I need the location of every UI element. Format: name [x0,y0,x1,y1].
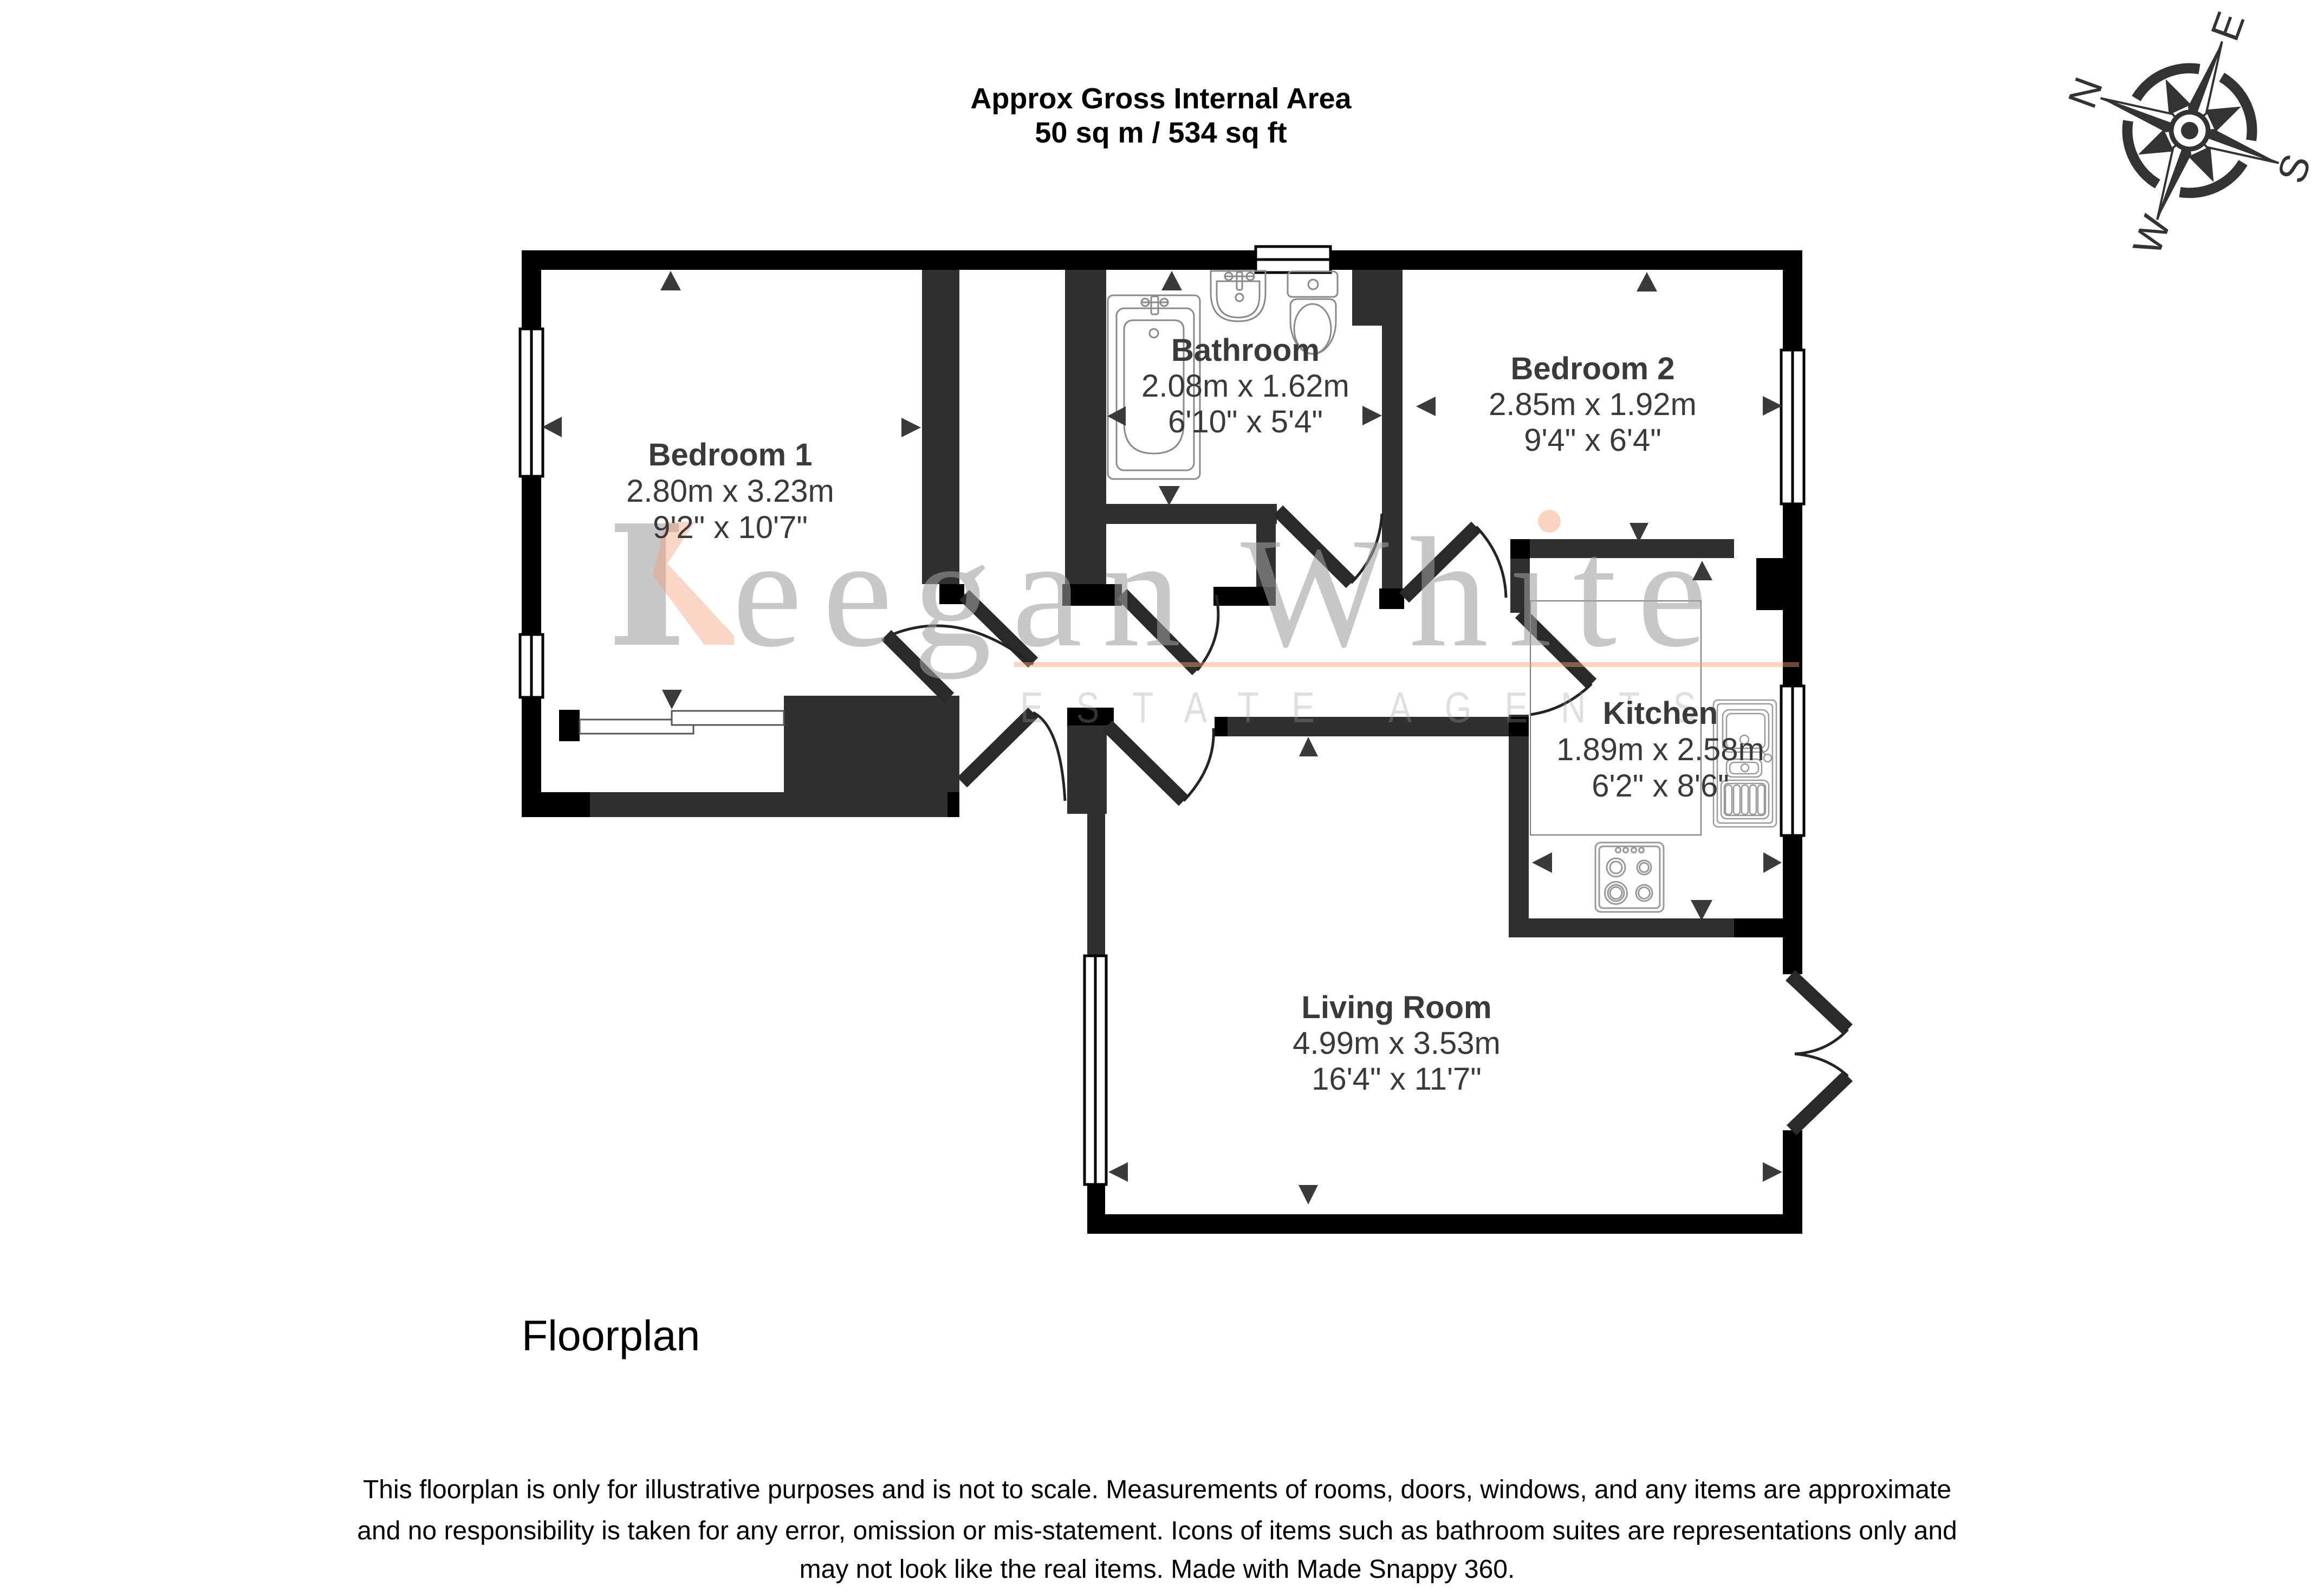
svg-text:Approx Gross Internal Area: Approx Gross Internal Area [970,82,1352,115]
svg-text:Floorplan: Floorplan [522,1311,700,1359]
svg-text:may not look like the real ite: may not look like the real items. Made w… [800,1555,1515,1584]
svg-text:and no responsibility is taken: and no responsibility is taken for any e… [357,1517,1957,1545]
svg-text:This floorplan is only for ill: This floorplan is only for illustrative … [363,1475,1951,1504]
svg-text:1.89m x 2.58m: 1.89m x 2.58m [1556,732,1764,767]
svg-text:Kitchen: Kitchen [1603,696,1718,731]
svg-text:Living Room: Living Room [1301,990,1491,1025]
svg-text:2.08m x 1.62m: 2.08m x 1.62m [1141,368,1349,404]
svg-text:Bedroom 1: Bedroom 1 [648,437,813,472]
svg-text:6'10" x 5'4": 6'10" x 5'4" [1168,404,1323,439]
svg-text:9'4" x 6'4": 9'4" x 6'4" [1524,423,1661,458]
svg-text:2.80m x 3.23m: 2.80m x 3.23m [626,474,834,509]
svg-text:4.99m x 3.53m: 4.99m x 3.53m [1293,1026,1501,1061]
svg-text:6'2" x 8'6": 6'2" x 8'6" [1592,768,1729,804]
svg-text:2.85m x 1.92m: 2.85m x 1.92m [1489,387,1697,422]
svg-text:Bathroom: Bathroom [1171,333,1320,368]
svg-text:Bedroom 2: Bedroom 2 [1511,351,1675,386]
svg-text:16'4" x 11'7": 16'4" x 11'7" [1312,1061,1482,1097]
svg-text:9'2" x 10'7": 9'2" x 10'7" [653,510,808,545]
svg-text:50 sq m / 534 sq ft: 50 sq m / 534 sq ft [1035,116,1287,149]
